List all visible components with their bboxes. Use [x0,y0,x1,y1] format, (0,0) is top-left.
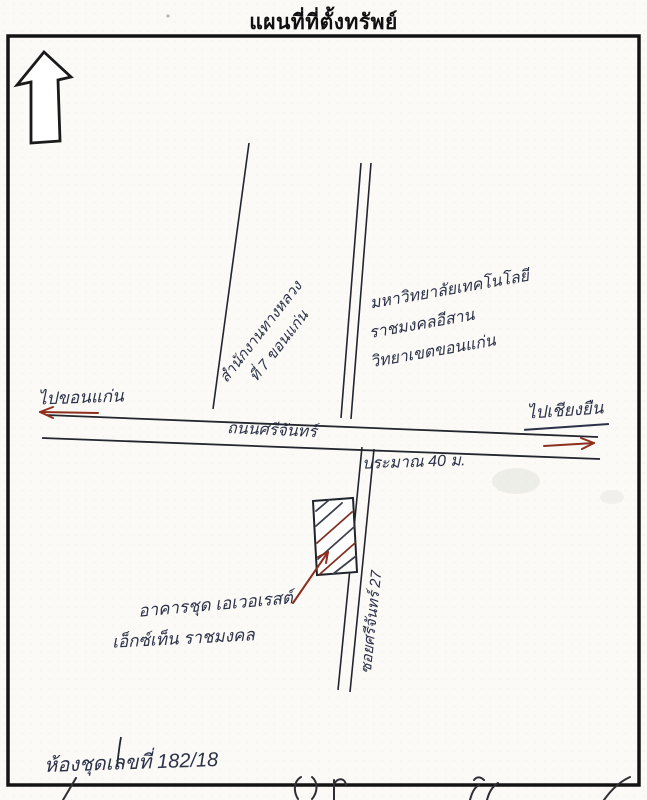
direction-label-right: ไปเชียงยืน [522,394,609,431]
direction-label-left: ไปขอนแก่น [38,383,125,413]
north-arrow-icon [17,52,71,143]
property-location-map-page: แผนที่ที่ตั้งทรัพย์ [0,0,647,800]
main-road-lines [42,415,600,459]
main-road-name: ถนนศรีจันทร์ [226,416,317,445]
property-pointer-arrow [293,552,328,603]
distance-note: ประมาณ 40 ม. [362,448,466,477]
unit-number: ห้องชุดเลขที่ 182/18 [43,743,218,781]
cut-off-handwriting [63,777,630,800]
right-direction-arrow [544,438,594,449]
